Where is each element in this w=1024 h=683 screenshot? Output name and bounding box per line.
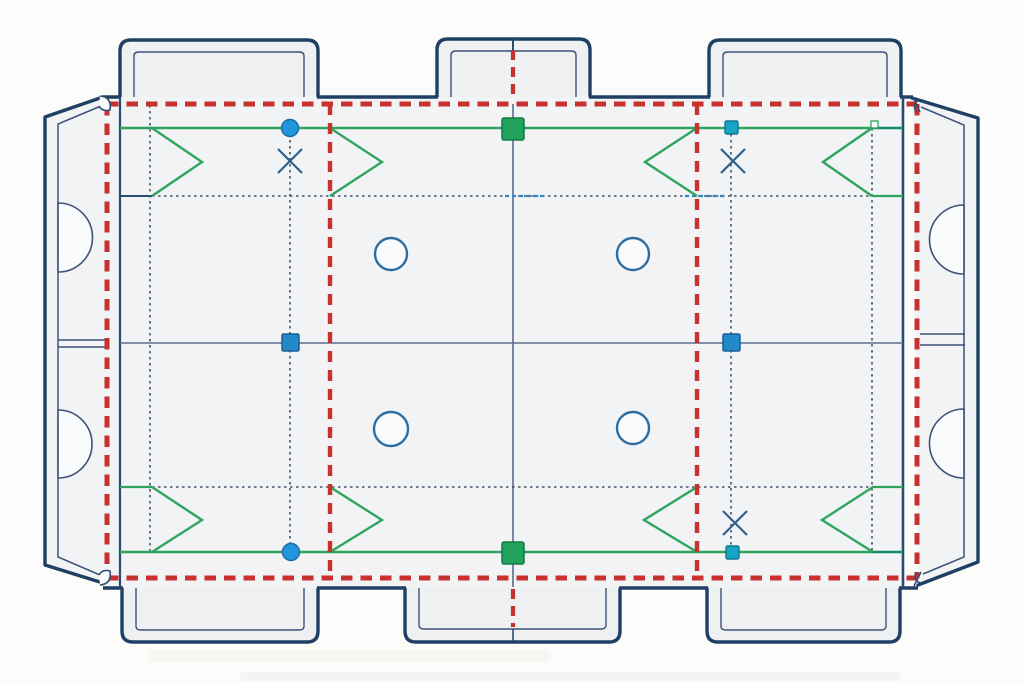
vent-circle-bottom-left <box>374 412 408 446</box>
dieline-svg <box>0 0 1024 683</box>
shadow-smudge-left <box>150 650 550 662</box>
bottom-tab-right <box>707 588 900 642</box>
blue-square-mid-left <box>282 334 299 351</box>
top-tab-left <box>120 40 318 97</box>
teal-square-bottom <box>726 546 739 559</box>
green-square-bottom <box>502 542 524 564</box>
shadow-smudge-right <box>240 672 900 681</box>
bottom-tab-left <box>122 588 318 642</box>
right-flap-fill <box>912 98 978 585</box>
diagram-container <box>0 0 1024 683</box>
blue-square-mid-right <box>723 334 740 351</box>
blue-dot-top <box>282 120 299 137</box>
green-square-top <box>502 118 524 140</box>
vent-circle-bottom-right <box>617 412 649 444</box>
teal-square-top <box>725 121 738 134</box>
top-tab-right <box>709 40 901 97</box>
blue-dot-bottom <box>283 544 300 561</box>
tiny-open-square <box>871 121 878 128</box>
vent-circle-top-right <box>617 238 649 270</box>
vent-circle-top-left <box>375 238 407 270</box>
